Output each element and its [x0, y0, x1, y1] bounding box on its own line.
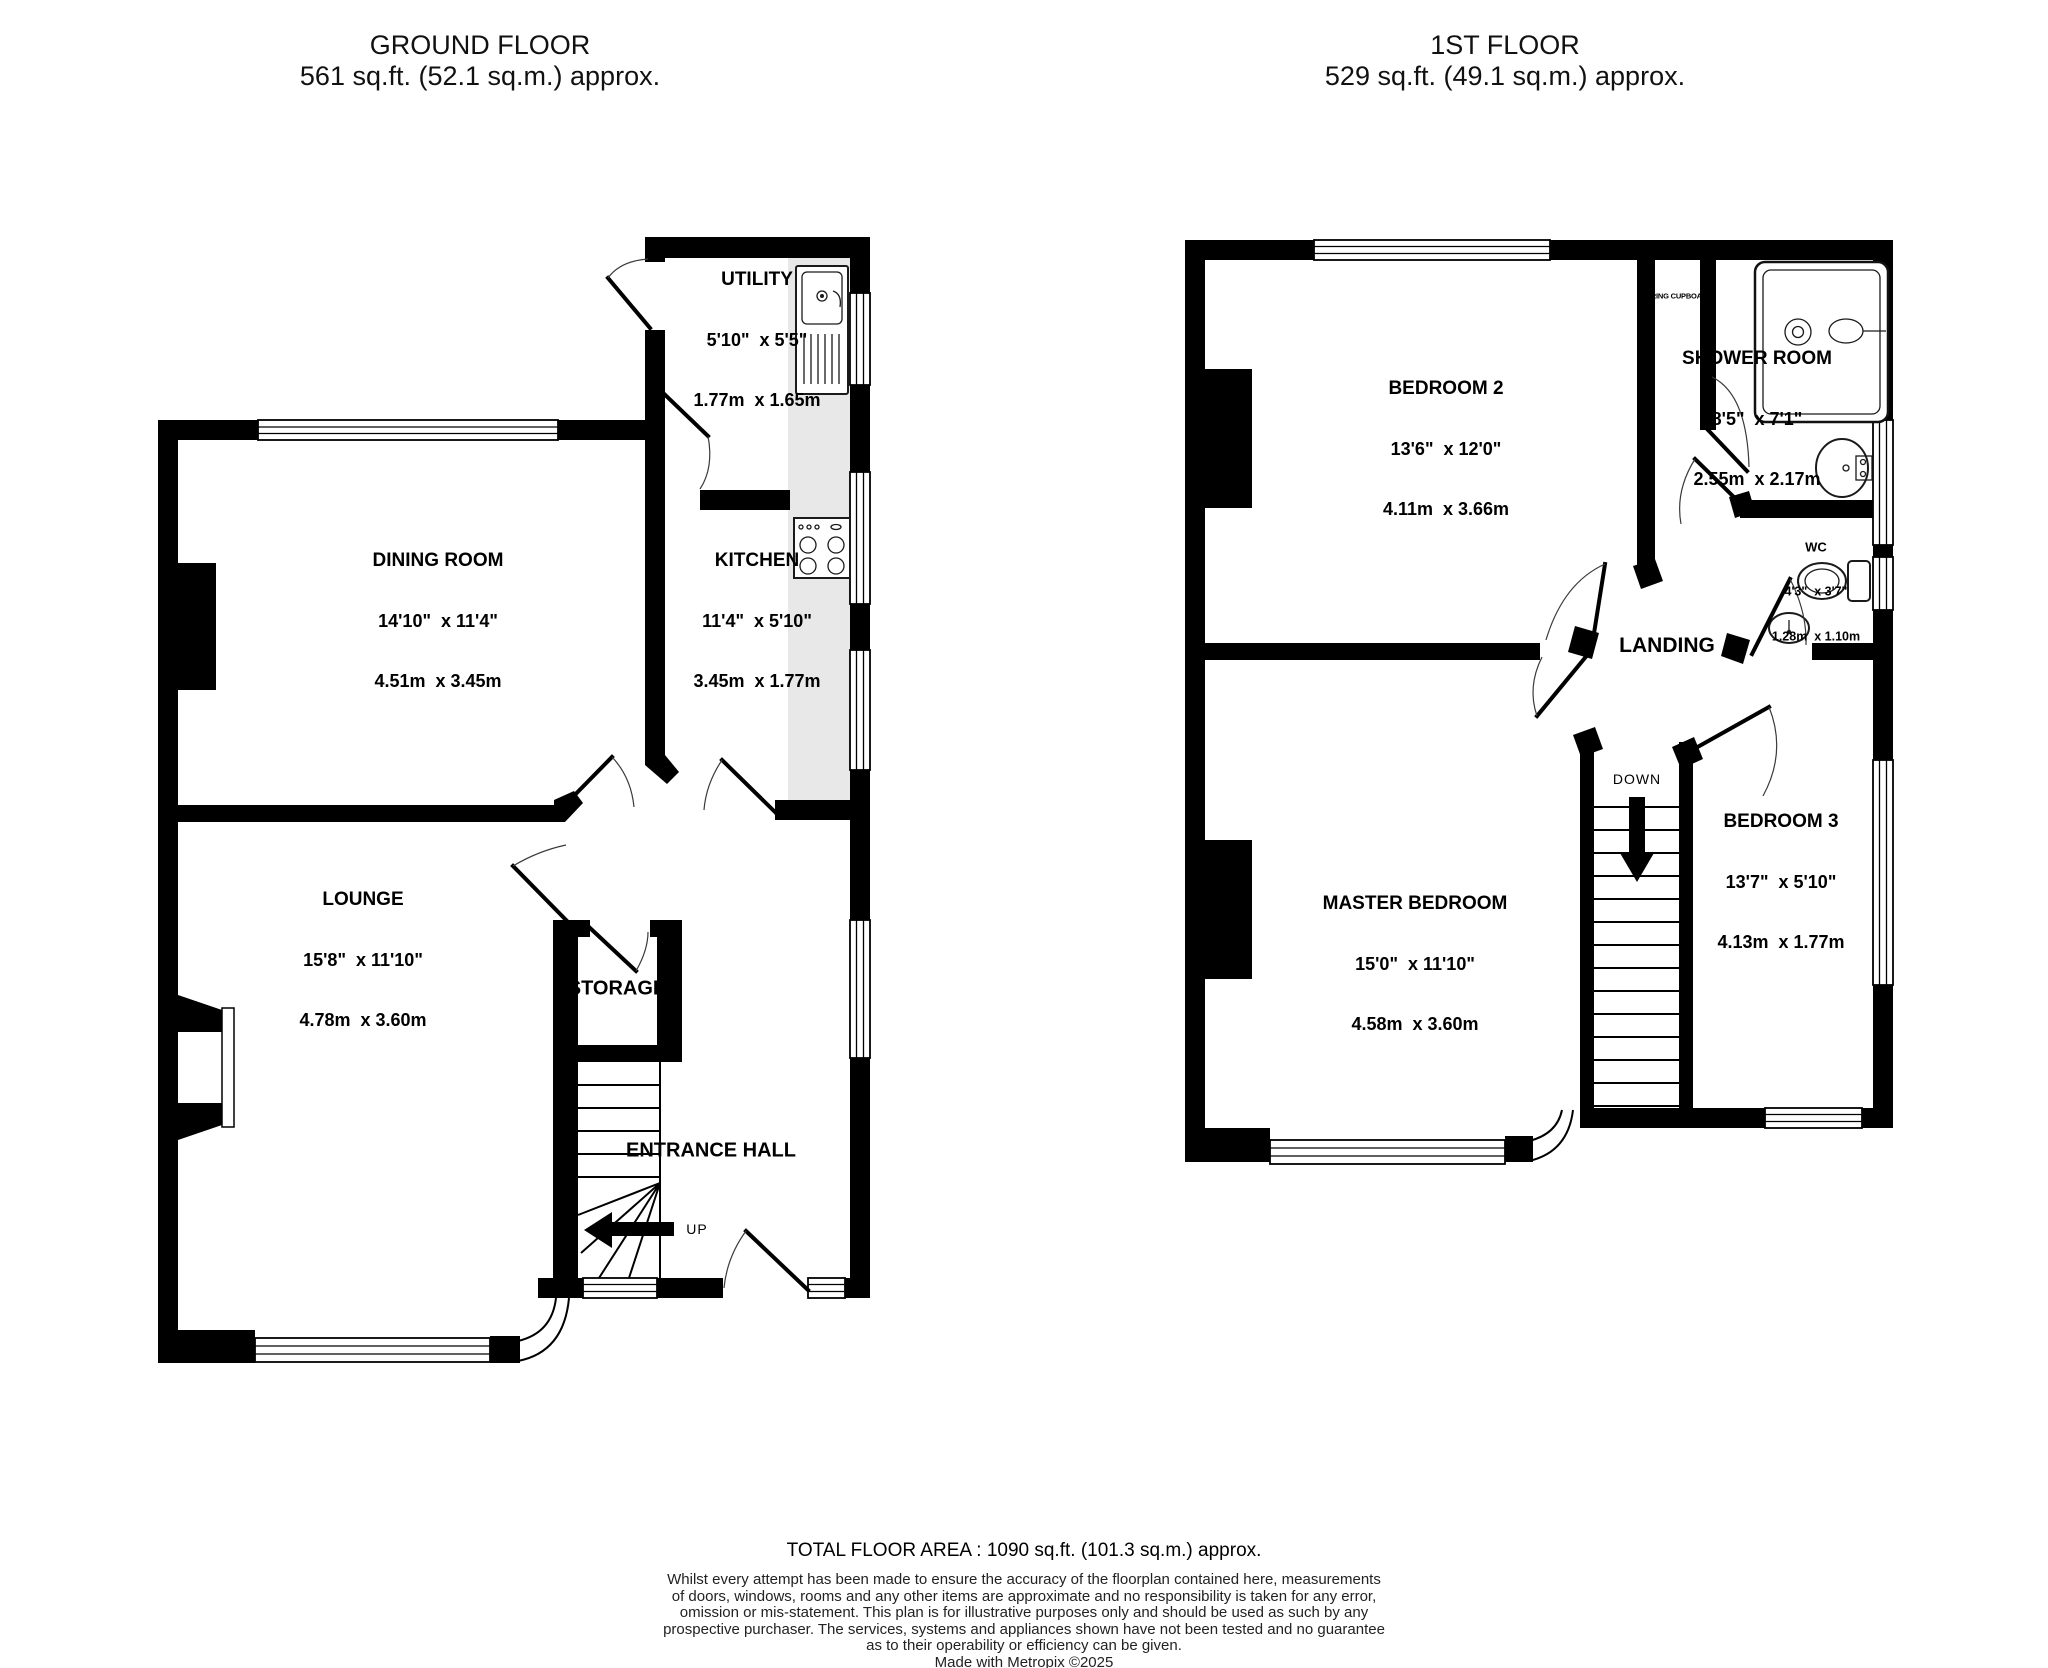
total-floor-area: TOTAL FLOOR AREA : 1090 sq.ft. (101.3 sq…: [0, 1540, 2048, 1562]
master-chimney-breast: [1205, 840, 1252, 979]
metropix-credit: Made with Metropix ©2025: [0, 1655, 2048, 1668]
lounge-door: [513, 845, 566, 920]
room-label-utility: UTILITY 5'10" x 5'5" 1.77m x 1.65m: [693, 230, 820, 450]
first-floor-title-line: 1ST FLOOR: [1205, 30, 1805, 61]
first-staircase: [1594, 797, 1679, 1106]
down-label: DOWN: [1613, 771, 1661, 787]
first-floor-area: 529 sq.ft. (49.1 sq.m.) approx.: [1205, 61, 1805, 92]
kitchen-door: [704, 760, 775, 812]
bay-window-glazing: [1270, 1140, 1505, 1164]
disclaimer-line: of doors, windows, rooms and any other i…: [0, 1589, 2048, 1606]
bay-window-glazing: [255, 1338, 490, 1362]
airing-cupboard-label: AIRING CUPBOARD: [1644, 292, 1713, 301]
ground-staircase: [578, 1062, 674, 1278]
storage-door: [590, 928, 648, 971]
lounge-fireplace: [178, 995, 222, 1032]
room-label-master-bedroom: MASTER BEDROOM 15'0" x 11'10" 4.58m x 3.…: [1323, 854, 1508, 1074]
bay-window-curves: [518, 1298, 569, 1361]
floorplan-page: GROUND FLOOR 561 sq.ft. (52.1 sq.m.) app…: [0, 0, 2048, 1668]
disclaimer-line: Whilst every attempt has been made to en…: [0, 1572, 2048, 1589]
ground-floor-title: GROUND FLOOR 561 sq.ft. (52.1 sq.m.) app…: [180, 30, 780, 92]
storage-label: STORAGE: [568, 978, 667, 1001]
down-arrow-icon: [1620, 797, 1654, 882]
landing-label: LANDING: [1619, 634, 1715, 658]
front-door: [724, 1231, 808, 1290]
ground-floor-title-line: GROUND FLOOR: [180, 30, 780, 61]
room-label-shower-room: SHOWER ROOM 8'5" x 7'1" 2.55m x 2.17m: [1682, 309, 1832, 529]
first-floor-title: 1ST FLOOR 529 sq.ft. (49.1 sq.m.) approx…: [1205, 30, 1805, 92]
disclaimer-line: as to their operability or efficiency ca…: [0, 1638, 2048, 1655]
room-label-bedroom2: BEDROOM 2 13'6" x 12'0" 4.11m x 3.66m: [1383, 339, 1509, 559]
room-label-bedroom3: BEDROOM 3 13'7" x 5'10" 4.13m x 1.77m: [1717, 772, 1844, 992]
disclaimer-line: prospective purchaser. The services, sys…: [0, 1622, 2048, 1639]
room-label-wc: WC 4'3" x 3'7" 1.28m x 1.10m: [1772, 510, 1860, 675]
up-label: UP: [686, 1221, 707, 1237]
dining-chimney-breast: [178, 563, 216, 690]
ground-floor-area: 561 sq.ft. (52.1 sq.m.) approx.: [180, 61, 780, 92]
disclaimer: Whilst every attempt has been made to en…: [0, 1572, 2048, 1668]
bay-window-curves: [1529, 1110, 1573, 1161]
master-bedroom-door: [1533, 653, 1589, 716]
bedroom2-chimney-breast: [1205, 369, 1252, 508]
disclaimer-line: omission or mis-statement. This plan is …: [0, 1605, 2048, 1622]
entrance-hall-label: ENTRANCE HALL: [626, 1140, 796, 1163]
room-label-kitchen: KITCHEN 11'4" x 5'10" 3.45m x 1.77m: [693, 511, 820, 731]
back-door: [608, 259, 650, 328]
room-label-lounge: LOUNGE 15'8" x 11'10" 4.78m x 3.60m: [299, 850, 426, 1070]
room-label-dining-room: DINING ROOM 14'10" x 11'4" 4.51m x 3.45m: [373, 511, 504, 731]
